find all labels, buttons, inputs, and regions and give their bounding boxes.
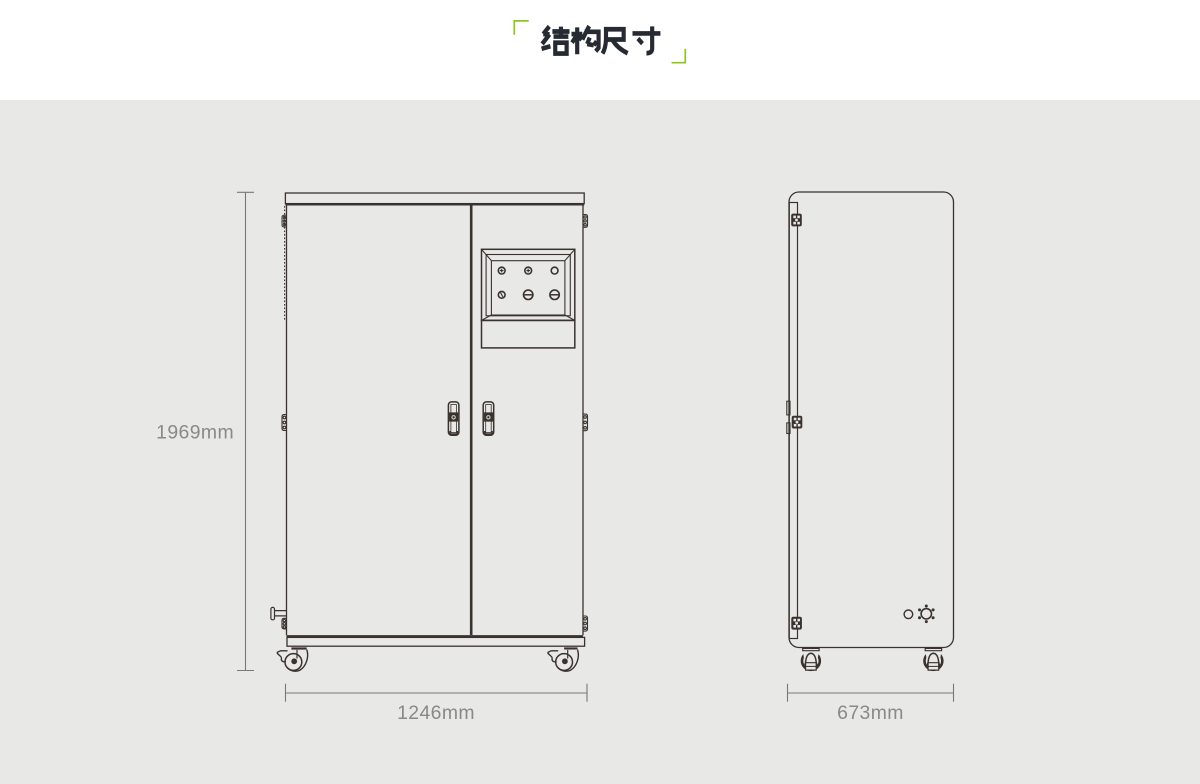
svg-text:1969mm: 1969mm <box>156 422 234 444</box>
svg-text:673mm: 673mm <box>837 702 904 724</box>
svg-text:1246mm: 1246mm <box>397 702 475 724</box>
